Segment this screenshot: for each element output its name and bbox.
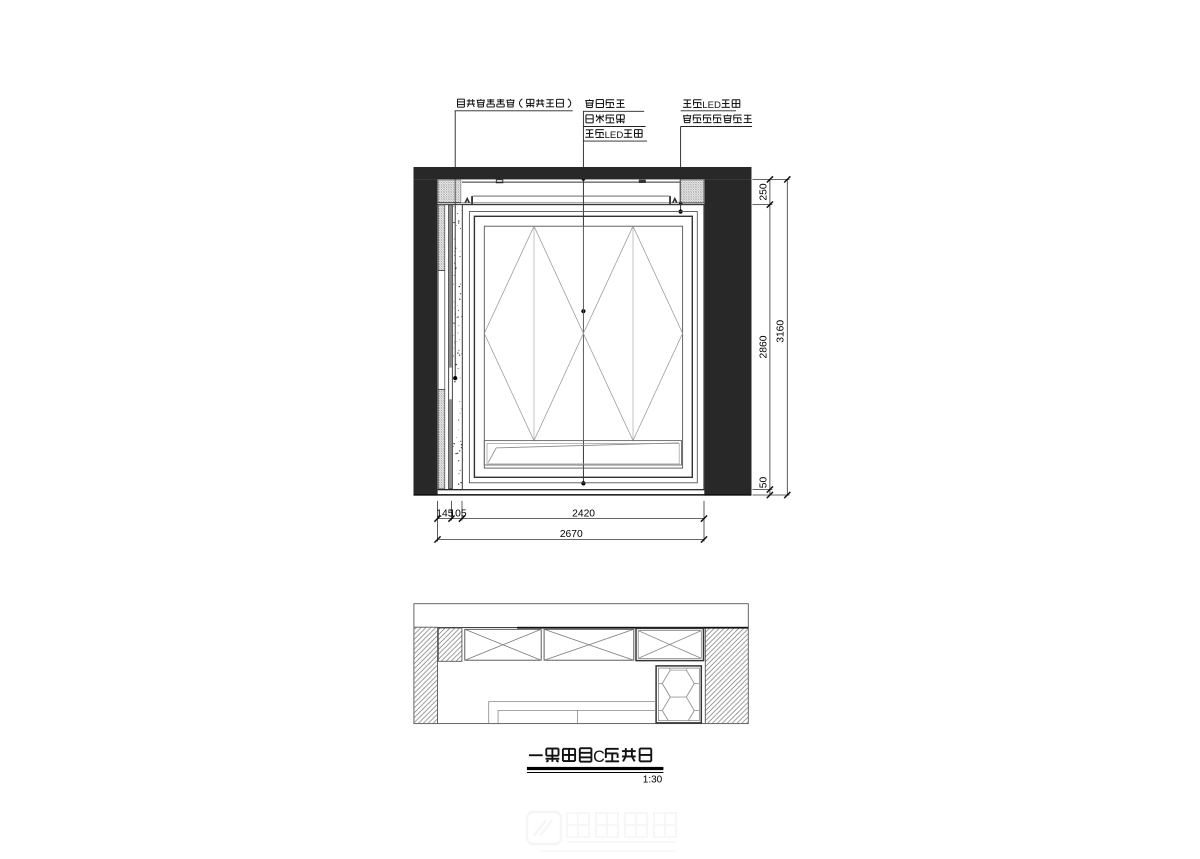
- svg-text:2860: 2860: [758, 335, 769, 358]
- svg-text:LED: LED: [702, 100, 721, 111]
- svg-text:1:30: 1:30: [643, 775, 663, 786]
- svg-text:50: 50: [758, 477, 769, 489]
- svg-text:2670: 2670: [560, 529, 583, 540]
- svg-text:C: C: [593, 748, 605, 766]
- svg-text:105: 105: [449, 508, 466, 519]
- svg-text:3160: 3160: [776, 320, 787, 343]
- svg-text:2420: 2420: [572, 509, 595, 520]
- svg-text:LED: LED: [605, 130, 624, 141]
- svg-text:250: 250: [758, 183, 769, 200]
